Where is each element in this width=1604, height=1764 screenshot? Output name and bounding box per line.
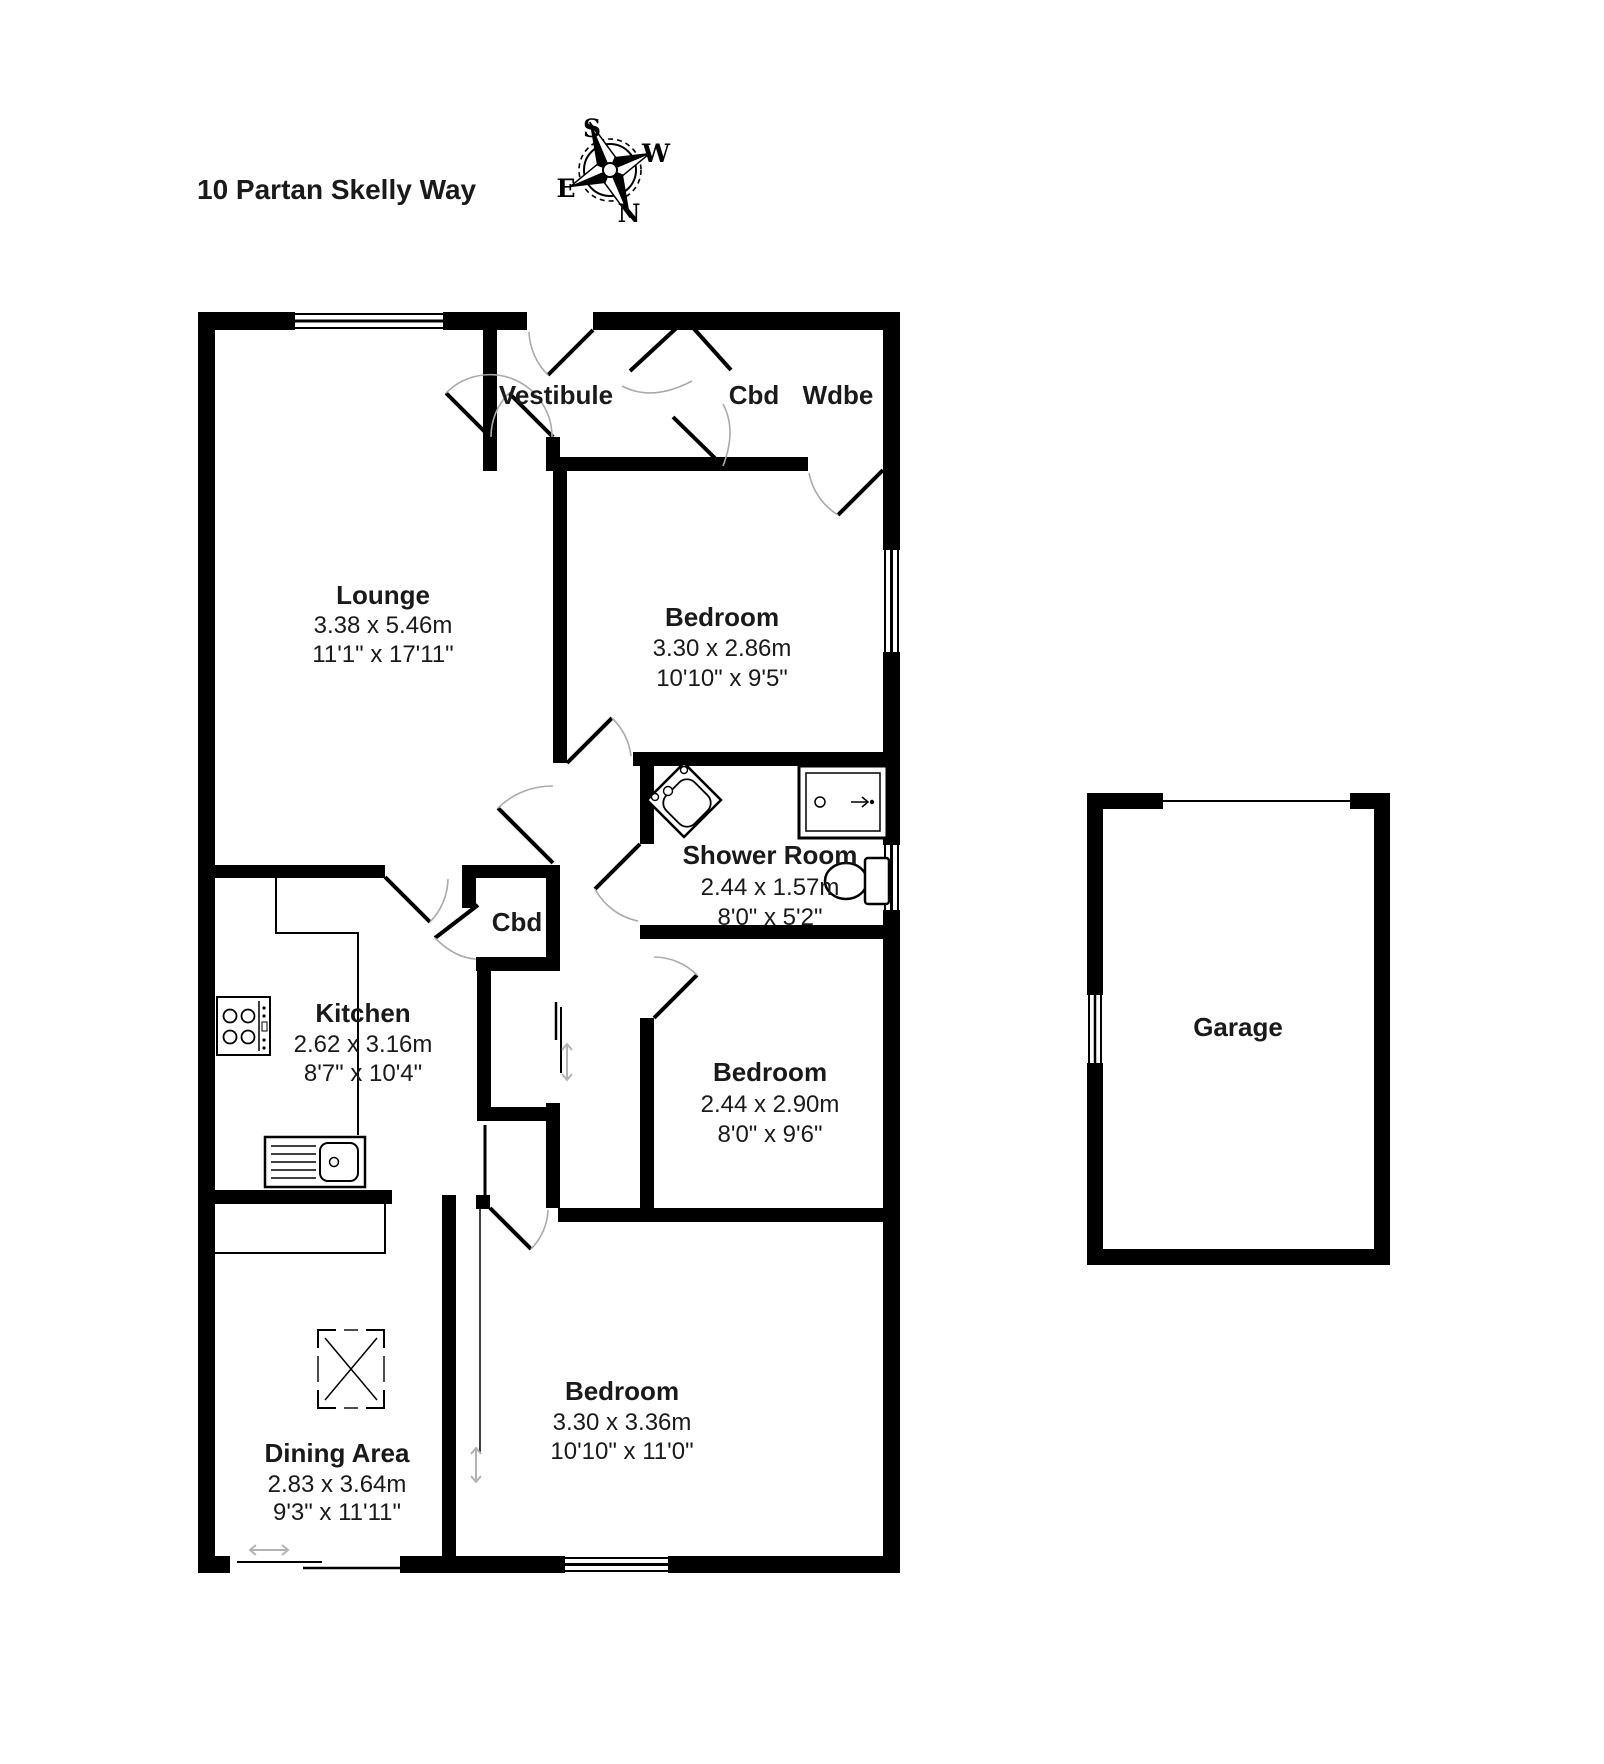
lounge-window [295, 312, 443, 330]
compass-north-label: N [618, 199, 641, 228]
bedroom3-label: Bedroom 3.30 x 3.36m 10'10" x 11'0" [550, 1376, 693, 1465]
corner-basin-icon [647, 763, 721, 837]
slide-arrow-vertical-icon [562, 1044, 572, 1080]
patio-sliding-door [237, 1545, 400, 1568]
wdbe-door [809, 470, 883, 515]
svg-text:10'10" x 11'0": 10'10" x 11'0" [550, 1438, 693, 1465]
svg-text:2.44 x 1.57m: 2.44 x 1.57m [701, 874, 840, 901]
garage-label: Garage [1193, 1012, 1283, 1042]
vestibule-label: Vestibule [499, 380, 613, 410]
compass-south-label: S [583, 114, 601, 143]
svg-text:10'10" x 9'5": 10'10" x 9'5" [656, 665, 788, 692]
bedroom1-door [567, 718, 631, 763]
floorplan-page: 10 Partan Skelly Way S W E N [0, 0, 1604, 1764]
hall-lounge-door [498, 786, 553, 863]
hall-pocket-door-lower [471, 1125, 485, 1482]
cbd2-label: Cbd [492, 907, 543, 937]
wdbe-label: Wdbe [803, 380, 874, 410]
bedroom1-window [883, 550, 900, 652]
room-labels: Vestibule Cbd Wdbe Lounge 3.38 x 5.46m 1… [265, 380, 1283, 1526]
svg-text:Shower Room: Shower Room [683, 840, 858, 870]
front-door-opening [527, 311, 593, 331]
hall-pocket-door-upper [556, 1002, 572, 1080]
page-title: 10 Partan Skelly Way [197, 174, 477, 205]
floorplan-svg: 10 Partan Skelly Way S W E N [0, 0, 1604, 1764]
front-door [529, 330, 593, 375]
svg-text:3.30 x 3.36m: 3.30 x 3.36m [553, 1409, 692, 1436]
bedroom3-window [565, 1556, 668, 1573]
svg-text:2.83 x 3.64m: 2.83 x 3.64m [268, 1471, 407, 1498]
bedroom2-label: Bedroom 2.44 x 2.90m 8'0" x 9'6" [701, 1057, 840, 1148]
svg-text:8'0" x 9'6": 8'0" x 9'6" [718, 1121, 823, 1148]
shower-enclosure-icon [799, 766, 887, 838]
slide-arrow-horizontal-icon [250, 1545, 288, 1555]
svg-text:Bedroom: Bedroom [665, 602, 779, 632]
dining-area-label: Dining Area 2.83 x 3.64m 9'3" x 11'11" [265, 1438, 410, 1526]
garage-window [1087, 995, 1103, 1063]
lounge-label: Lounge 3.38 x 5.46m 11'1" x 17'11" [312, 580, 453, 668]
bedroom1-label: Bedroom 3.30 x 2.86m 10'10" x 9'5" [653, 602, 792, 692]
compass-west-label: W [641, 139, 671, 168]
sink-icon [265, 1137, 365, 1187]
breakfast-bar-line [212, 1204, 385, 1253]
hob-icon [217, 997, 270, 1055]
svg-text:8'7" x 10'4": 8'7" x 10'4" [304, 1060, 422, 1087]
bedroom3-door [490, 1208, 548, 1249]
svg-text:3.30 x 2.86m: 3.30 x 2.86m [653, 635, 792, 662]
slide-arrow-vertical-icon [471, 1448, 481, 1482]
cbd-bifold-doors [622, 321, 731, 466]
svg-text:Bedroom: Bedroom [565, 1376, 679, 1406]
compass-east-label: E [556, 174, 575, 203]
compass-rose: S W E N [549, 105, 671, 235]
svg-text:2.62 x 3.16m: 2.62 x 3.16m [294, 1031, 433, 1058]
svg-text:Lounge: Lounge [336, 580, 430, 610]
cbd1-label: Cbd [729, 380, 780, 410]
kitchen-door [385, 877, 448, 922]
svg-text:Kitchen: Kitchen [315, 998, 410, 1028]
kitchen-label: Kitchen 2.62 x 3.16m 8'7" x 10'4" [294, 998, 433, 1087]
svg-text:8'0" x 5'2": 8'0" x 5'2" [718, 904, 823, 931]
svg-text:9'3" x 11'11": 9'3" x 11'11" [273, 1499, 401, 1526]
svg-text:3.38 x 5.46m: 3.38 x 5.46m [314, 612, 453, 639]
svg-text:11'1" x 17'11": 11'1" x 17'11" [312, 641, 453, 668]
shower-door [595, 844, 640, 921]
shower-room-label: Shower Room 2.44 x 1.57m 8'0" x 5'2" [683, 840, 858, 931]
compass-needle [549, 105, 671, 235]
interior-walls [198, 330, 900, 1573]
svg-text:2.44 x 2.90m: 2.44 x 2.90m [701, 1091, 840, 1118]
bedroom2-door [654, 957, 697, 1018]
dining-table-icon [318, 1330, 384, 1408]
svg-text:Dining Area: Dining Area [265, 1438, 410, 1468]
svg-text:Bedroom: Bedroom [713, 1057, 827, 1087]
cbd2-door [435, 905, 478, 959]
